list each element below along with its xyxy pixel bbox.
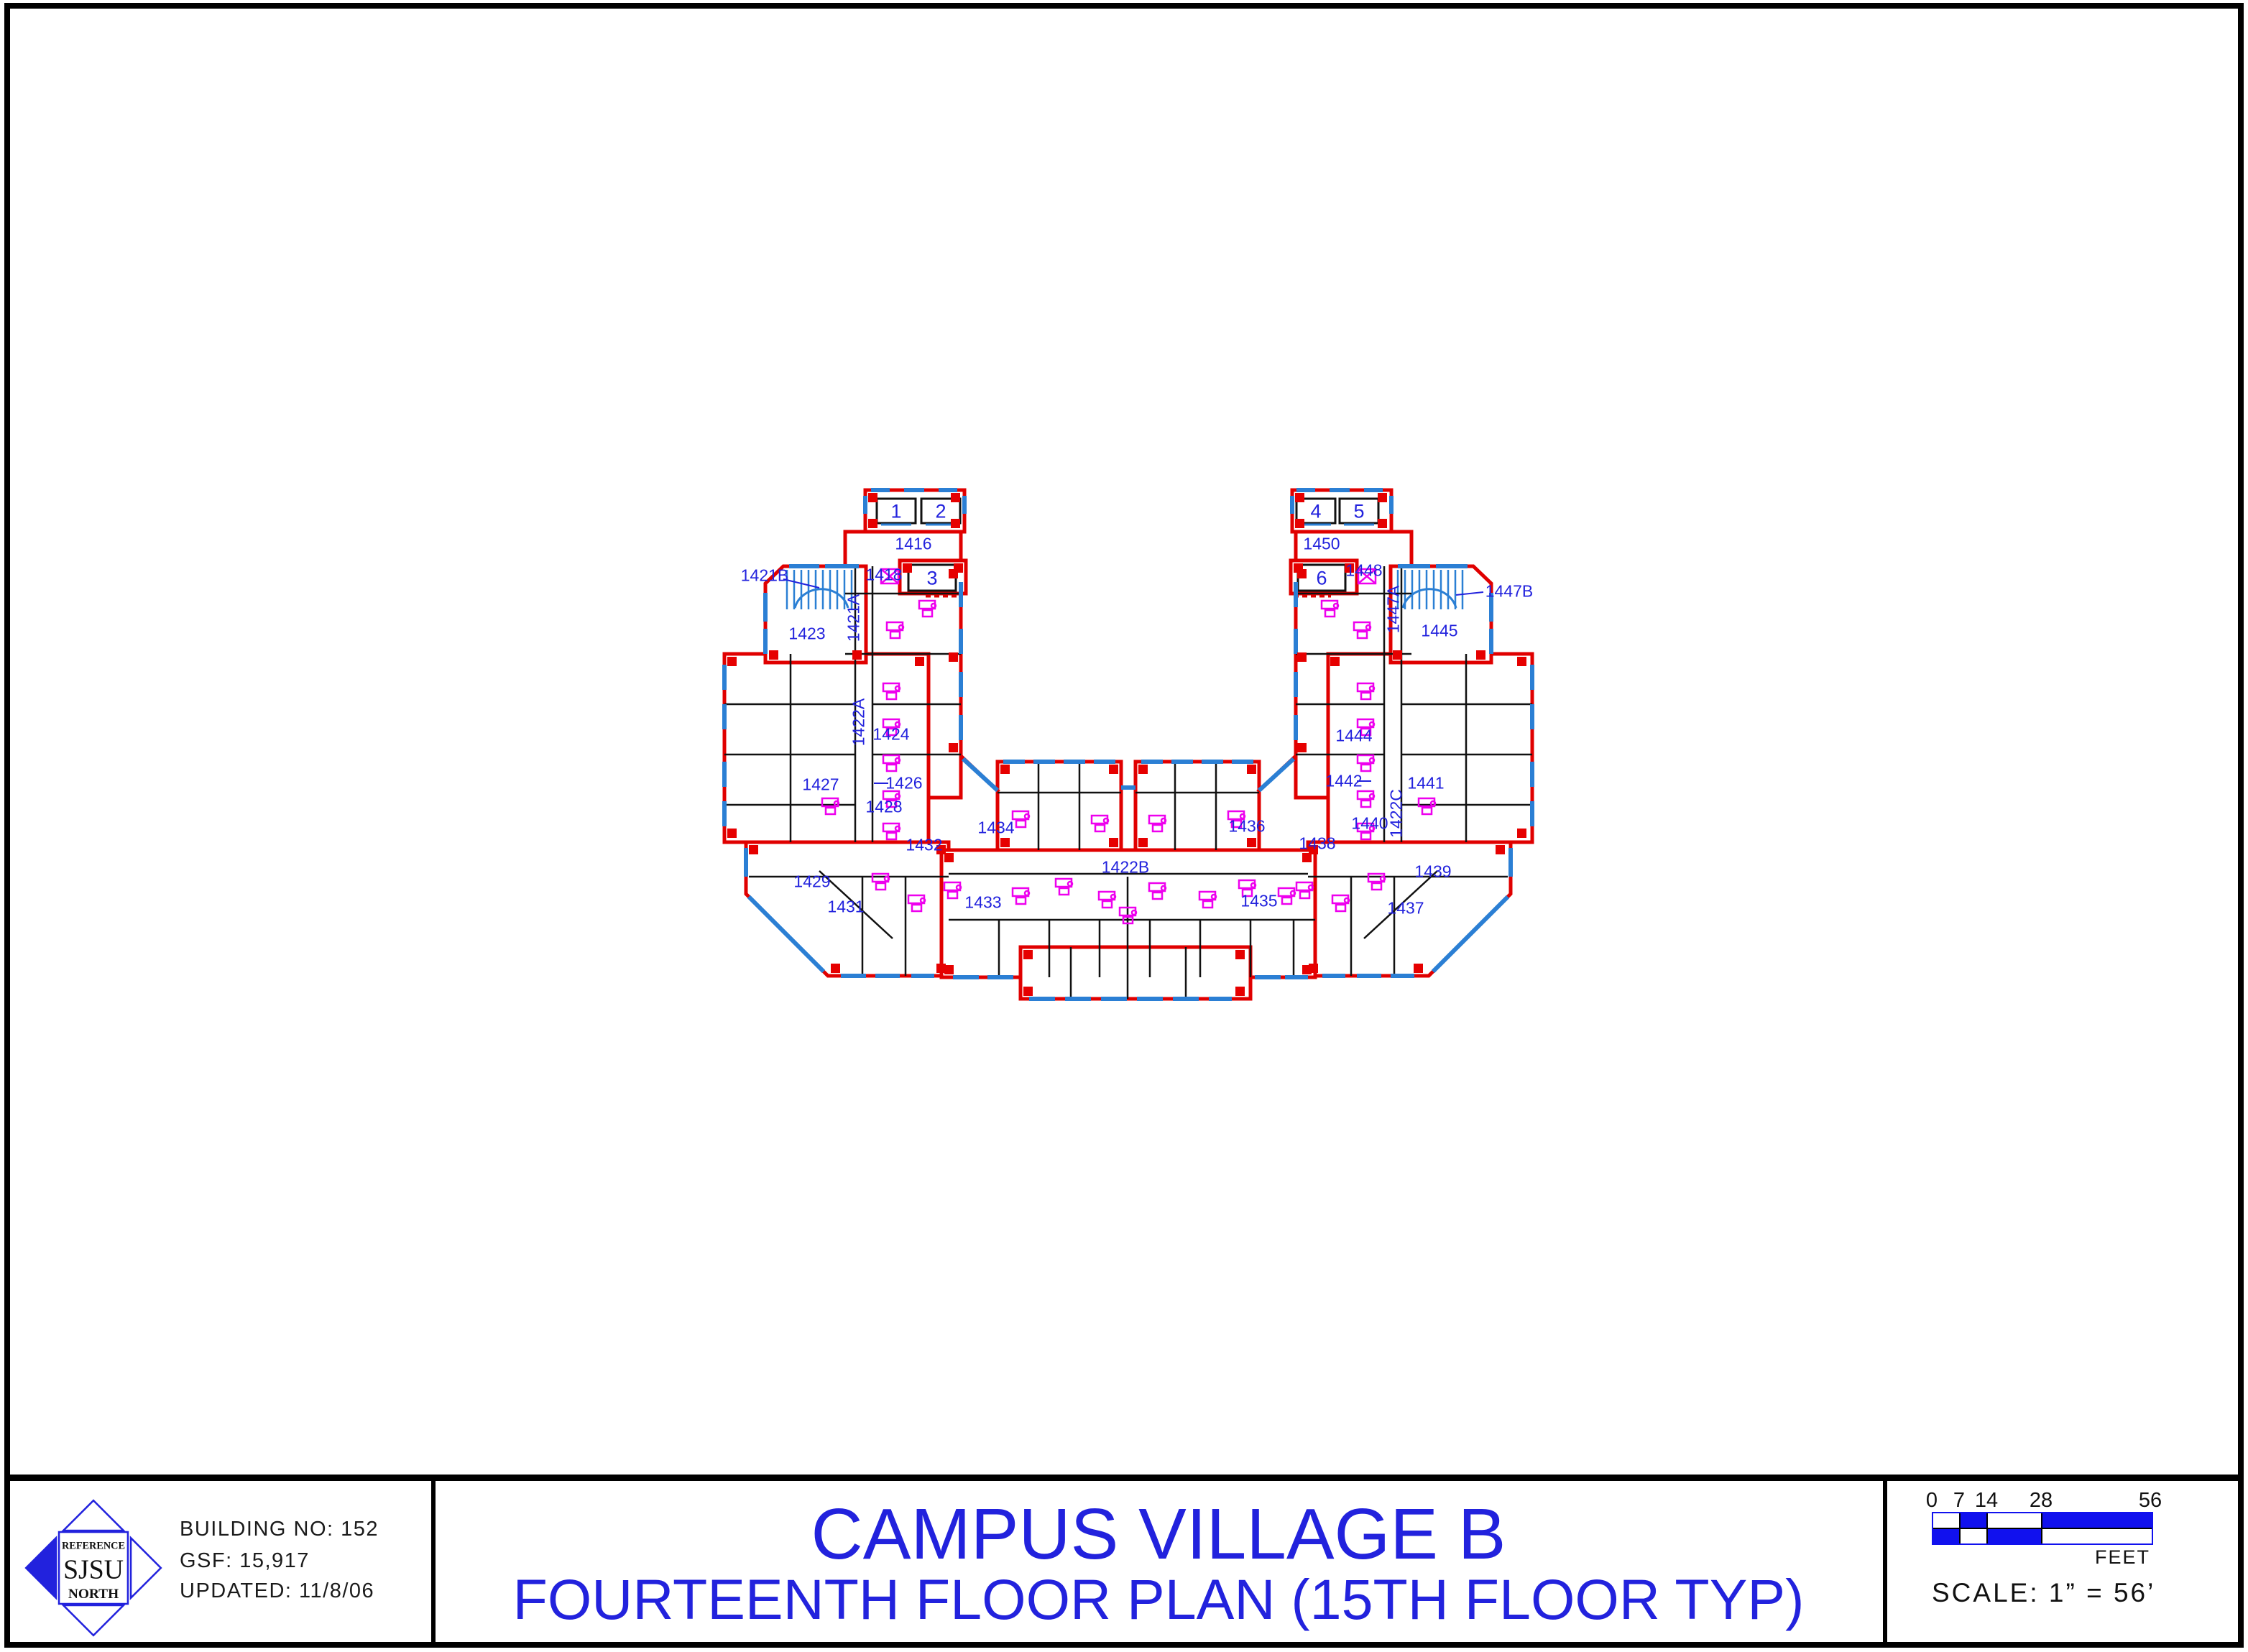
compass-reference-label: REFERENCE [62, 1540, 125, 1551]
scale-segment [2042, 1529, 2152, 1543]
scale-segment [1933, 1513, 1961, 1528]
room-label-1441: 1441 [1407, 775, 1444, 792]
room-label-1447A: 1447A [1386, 586, 1402, 634]
title-block-divider-left [431, 1481, 436, 1646]
scale-tick-14: 14 [1975, 1489, 1998, 1513]
scale-tick-0: 0 [1926, 1489, 1938, 1513]
room-label-1433: 1433 [964, 895, 1001, 911]
scale-segment [1961, 1529, 1988, 1543]
room-label-1429: 1429 [793, 874, 830, 890]
room-label-1442: 1442 [1325, 773, 1362, 790]
room-label-1447B: 1447B [1485, 583, 1534, 600]
room-label-1434: 1434 [977, 820, 1014, 836]
scale-unit-label: FEET [2095, 1546, 2150, 1569]
room-label-1444: 1444 [1335, 728, 1372, 744]
compass-east-triangle [131, 1538, 161, 1598]
compass-sjsu-label: SJSU [63, 1554, 124, 1584]
graphic-scale-bar [1932, 1512, 2153, 1545]
room-label-1436: 1436 [1228, 818, 1265, 835]
title-block-top-rule [4, 1475, 2244, 1481]
room-label-1448: 1448 [1345, 563, 1382, 579]
compass-north-label: NORTH [68, 1587, 119, 1602]
scale-segment [1961, 1513, 1988, 1528]
room-labels-layer: 123456141614181421B1421A14231422A1424142… [711, 474, 1545, 1028]
room-label-1439: 1439 [1414, 864, 1451, 880]
room-label-4: 4 [1310, 502, 1321, 522]
scale-tick-56: 56 [2139, 1489, 2162, 1513]
room-label-1416: 1416 [895, 536, 931, 553]
title-block-divider-right [1883, 1481, 1887, 1646]
room-label-3: 3 [926, 569, 937, 589]
room-label-1426: 1426 [885, 775, 922, 792]
sheet-title: CAMPUS VILLAGE B FOURTEENTH FLOOR PLAN (… [438, 1481, 1879, 1645]
scale-tick-7: 7 [1953, 1489, 1965, 1513]
reference-north-compass: REFERENCE SJSU NORTH [20, 1495, 167, 1641]
room-label-1440: 1440 [1351, 816, 1388, 832]
scale-segment [1988, 1513, 2042, 1528]
sheet-title-line2: FOURTEENTH FLOOR PLAN (15TH FLOOR TYP) [513, 1571, 1805, 1629]
room-label-1422A: 1422A [851, 698, 867, 747]
building-no-line: BUILDING NO: 152 [180, 1518, 379, 1541]
room-label-1450: 1450 [1303, 536, 1340, 553]
room-label-1445: 1445 [1421, 623, 1457, 640]
scale-segment [2042, 1513, 2152, 1528]
room-label-1437: 1437 [1387, 900, 1424, 917]
floor-plan: 123456141614181421B1421A14231422A1424142… [711, 474, 1545, 1028]
room-label-1428: 1428 [865, 799, 902, 816]
compass-north-triangle [63, 1500, 124, 1531]
compass-south-triangle [63, 1605, 124, 1635]
room-label-6: 6 [1316, 569, 1327, 589]
scale-bar-top-row [1933, 1513, 2152, 1529]
room-label-5: 5 [1353, 502, 1364, 522]
updated-line: UPDATED: 11/8/06 [180, 1579, 374, 1603]
room-label-1423: 1423 [788, 626, 825, 642]
room-label-2: 2 [935, 502, 946, 522]
room-label-1424: 1424 [872, 726, 909, 743]
room-label-1422C: 1422C [1388, 789, 1405, 838]
room-label-1421A: 1421A [846, 594, 862, 642]
gsf-line: GSF: 15,917 [180, 1549, 310, 1573]
scale-text: SCALE: 1” = 56’ [1932, 1578, 2155, 1608]
scale-tick-28: 28 [2030, 1489, 2053, 1513]
room-label-1422B: 1422B [1102, 859, 1150, 876]
sheet-title-line1: CAMPUS VILLAGE B [811, 1498, 1506, 1571]
room-label-1: 1 [890, 502, 901, 522]
room-label-1421B: 1421B [741, 568, 789, 584]
room-label-1435: 1435 [1240, 893, 1277, 910]
room-label-1432: 1432 [906, 837, 942, 854]
scale-bar-bottom-row [1933, 1529, 2152, 1543]
room-label-1427: 1427 [802, 777, 839, 793]
room-label-1431: 1431 [827, 899, 864, 915]
scale-segment [1988, 1529, 2042, 1543]
compass-west-triangle [26, 1538, 56, 1598]
room-label-1438: 1438 [1299, 836, 1335, 852]
drawing-sheet: 123456141614181421B1421A14231422A1424142… [0, 0, 2248, 1652]
scale-segment [1933, 1529, 1961, 1543]
room-label-1418: 1418 [865, 567, 902, 583]
